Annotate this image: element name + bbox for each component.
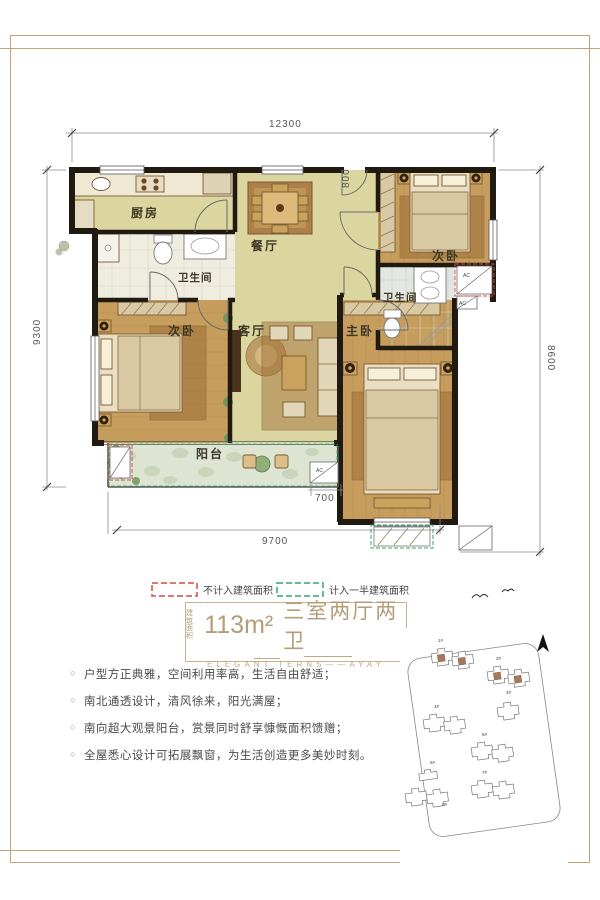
wardrobe-hatch — [118, 302, 186, 315]
bay-window — [371, 525, 433, 548]
building-cluster-1 — [431, 644, 475, 672]
title-prefix-line1: 建筑 — [186, 610, 200, 625]
dimension-top: 12300 — [66, 119, 498, 162]
bird-decoration-icon — [472, 589, 514, 598]
room-label-bath-master: 卫生间 — [383, 291, 418, 304]
room-label-master: 主卧 — [346, 323, 374, 338]
building-label: 1# — [438, 638, 444, 643]
ac-label-2: AC — [459, 301, 466, 307]
title-box: 建筑 面积 113m² 三室两厅两卫 ELEGANT TERNS——AYAY — [185, 602, 407, 662]
ac-label-1: AC — [463, 273, 470, 279]
wardrobe-hatch-2 — [380, 172, 395, 252]
building-label: 6# — [430, 760, 436, 765]
dim-entry: 800 — [341, 168, 352, 188]
feature-text-3: 南向超大观景阳台，赏景同时舒享慷慨面积馈赠； — [84, 720, 348, 736]
title-prefix-line2: 面积 — [186, 625, 200, 640]
list-item: ○ 全屋悉心设计可拓展飘窗，为生活创造更多美妙时刻。 — [70, 747, 400, 774]
building-label: 7# — [482, 770, 488, 775]
list-item: ○ 户型方正典雅，空间利用率高，生活自由舒适； — [70, 666, 400, 693]
title-area: 113m² — [204, 611, 273, 640]
room-label-living: 客厅 — [237, 323, 266, 338]
dimension-left: 9300 — [32, 166, 66, 491]
room-label-balcony: 阳台 — [196, 446, 224, 461]
bottom-rule — [0, 850, 456, 851]
bullet-icon: ○ — [70, 693, 76, 708]
title-row: 建筑 面积 113m² 三室两厅两卫 — [186, 595, 406, 655]
building-label: 4# — [506, 690, 512, 695]
building-label: 2# — [496, 656, 502, 661]
list-item: ○ 南向超大观景阳台，赏景同时舒享慷慨面积馈赠； — [70, 720, 400, 747]
site-boundary — [406, 642, 562, 839]
dim-top: 12300 — [269, 119, 302, 130]
feature-text-4: 全屋悉心设计可拓展飘窗，为生活创造更多美妙时刻。 — [84, 747, 372, 763]
building-label: 8# — [442, 802, 448, 807]
building-cluster-2 — [487, 662, 531, 690]
room-label-kitchen: 厨房 — [131, 205, 159, 220]
building-cluster-5 — [471, 738, 515, 765]
top-rule — [0, 48, 600, 49]
building-label: 3# — [434, 704, 440, 709]
title-room-count: 三室两厅两卫 — [283, 595, 406, 655]
floorplan-page: AC AC AC 厨房 餐厅 次卧 卫生间 客厅 次卧 主卧 卫生间 阳台 — [0, 0, 600, 900]
dim-left: 9300 — [32, 319, 43, 345]
building-cluster-4 — [497, 701, 520, 721]
building-label: 5# — [482, 732, 488, 737]
floor-plan: AC AC AC 厨房 餐厅 次卧 卫生间 客厅 次卧 主卧 卫生间 阳台 — [0, 80, 600, 600]
bullet-icon: ○ — [70, 720, 76, 735]
feature-list: ○ 户型方正典雅，空间利用率高，生活自由舒适； ○ 南北通透设计，清风徐来，阳光… — [70, 666, 400, 774]
title-prefix: 建筑 面积 — [186, 610, 200, 640]
room-label-bedroom-top: 次卧 — [432, 248, 460, 263]
dim-bottom: 9700 — [262, 536, 288, 547]
building-cluster-8 — [471, 776, 516, 803]
feature-text-1: 户型方正典雅，空间利用率高，生活自由舒适； — [84, 666, 336, 682]
title-decoration-line-2 — [304, 656, 352, 657]
title-decoration-line — [254, 658, 280, 659]
dim-right: 8600 — [545, 345, 556, 371]
ac-label-3: AC — [316, 468, 323, 474]
bullet-icon: ○ — [70, 666, 76, 681]
list-item: ○ 南北通透设计，清风徐来，阳光满屋； — [70, 693, 400, 720]
north-arrow-icon — [537, 634, 549, 652]
dim-step: 700 — [315, 493, 335, 504]
room-label-dining: 餐厅 — [251, 238, 279, 253]
dining-set — [248, 182, 312, 234]
room-label-bedroom-left: 次卧 — [168, 323, 196, 338]
room-label-bath-main: 卫生间 — [178, 271, 213, 284]
building-cluster-3 — [423, 710, 467, 737]
site-map: 1# 2# 3# 4# 5# — [400, 628, 568, 875]
bullet-icon: ○ — [70, 747, 76, 762]
outside-plant — [56, 241, 70, 256]
feature-text-2: 南北通透设计，清风徐来，阳光满屋； — [84, 693, 288, 709]
